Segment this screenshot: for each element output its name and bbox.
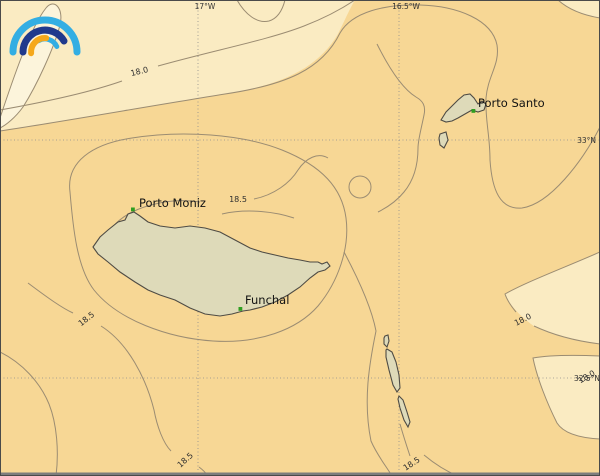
- lon-label-16-5w: 16.5°W: [392, 2, 420, 11]
- lat-label-33n: 33°N: [577, 136, 596, 145]
- map-canvas: Porto Moniz Funchal Porto Santo 18.0 18.…: [0, 0, 600, 476]
- porto-santo-label: Porto Santo: [478, 96, 545, 110]
- funchal-marker: [239, 307, 243, 311]
- contour-label-18-5-center: 18.5: [229, 195, 247, 204]
- contour-map[interactable]: Porto Moniz Funchal Porto Santo 18.0 18.…: [0, 0, 600, 476]
- funchal-label: Funchal: [245, 293, 289, 307]
- porto-santo-marker: [472, 109, 476, 113]
- porto-moniz-marker: [131, 208, 135, 212]
- porto-moniz-label: Porto Moniz: [139, 196, 206, 210]
- lon-label-17w: 17°W: [195, 2, 216, 11]
- lat-label-32-5n: 32.5°N: [574, 374, 600, 383]
